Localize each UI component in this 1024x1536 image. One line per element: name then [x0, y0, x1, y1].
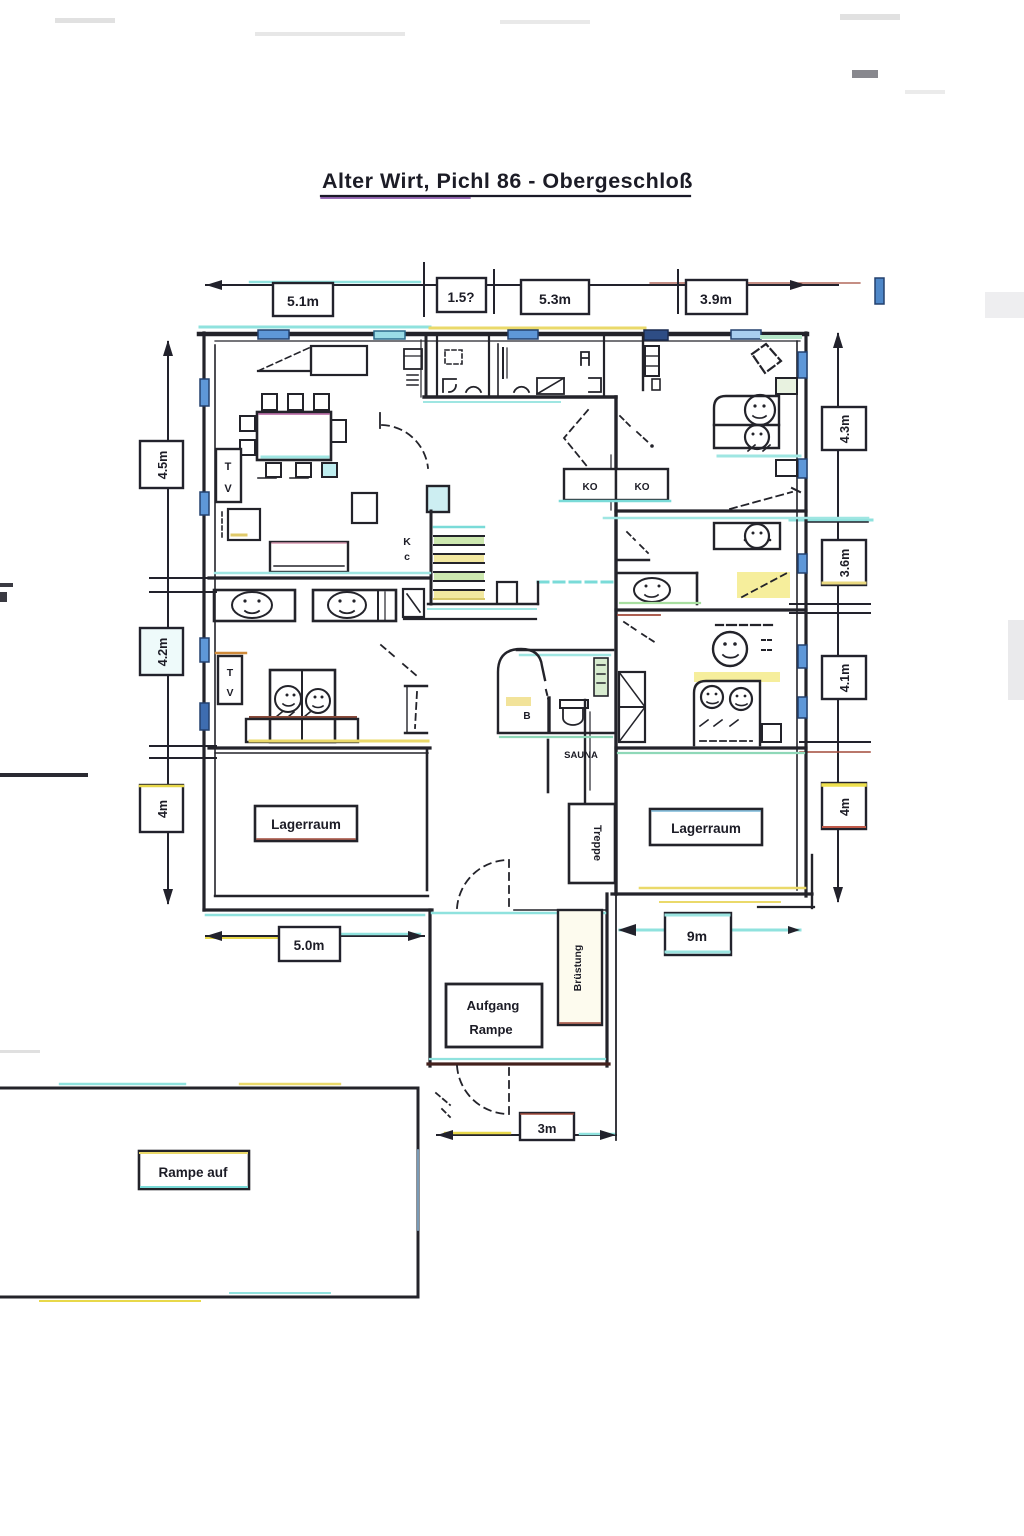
svg-text:Rampe auf: Rampe auf: [158, 1165, 228, 1180]
svg-text:3m: 3m: [538, 1121, 557, 1136]
svg-text:Treppe: Treppe: [591, 825, 603, 861]
svg-text:Aufgang: Aufgang: [467, 998, 520, 1013]
svg-text:4m: 4m: [838, 798, 852, 816]
svg-text:KO: KO: [583, 482, 598, 493]
svg-text:4.2m: 4.2m: [156, 638, 170, 667]
svg-text:Lagerraum: Lagerraum: [271, 817, 341, 832]
svg-text:SAUNA: SAUNA: [564, 750, 598, 761]
svg-text:4.1m: 4.1m: [838, 664, 852, 693]
svg-text:c: c: [404, 551, 410, 563]
svg-text:9m: 9m: [687, 928, 707, 944]
svg-text:5.1m: 5.1m: [287, 293, 319, 309]
svg-text:4m: 4m: [156, 800, 170, 818]
svg-text:5.0m: 5.0m: [294, 938, 325, 953]
svg-text:K: K: [403, 536, 411, 548]
svg-text:5.3m: 5.3m: [539, 291, 571, 307]
svg-text:4.3m: 4.3m: [838, 415, 852, 444]
svg-text:B: B: [523, 711, 530, 722]
svg-text:T: T: [225, 461, 232, 473]
svg-text:V: V: [226, 687, 233, 699]
svg-text:V: V: [224, 483, 232, 495]
svg-text:3.9m: 3.9m: [700, 291, 732, 307]
svg-text:Alter Wirt, Pichl 86 - Oberges: Alter Wirt, Pichl 86 - Obergeschloß: [322, 169, 693, 193]
svg-text:4.5m: 4.5m: [156, 451, 170, 480]
svg-text:Brüstung: Brüstung: [572, 945, 584, 992]
svg-text:Lagerraum: Lagerraum: [671, 821, 741, 836]
svg-text:3.6m: 3.6m: [838, 549, 852, 578]
svg-text:1.5?: 1.5?: [447, 290, 474, 305]
svg-text:Rampe: Rampe: [469, 1022, 512, 1037]
svg-text:T: T: [227, 667, 234, 679]
svg-text:KO: KO: [635, 482, 650, 493]
